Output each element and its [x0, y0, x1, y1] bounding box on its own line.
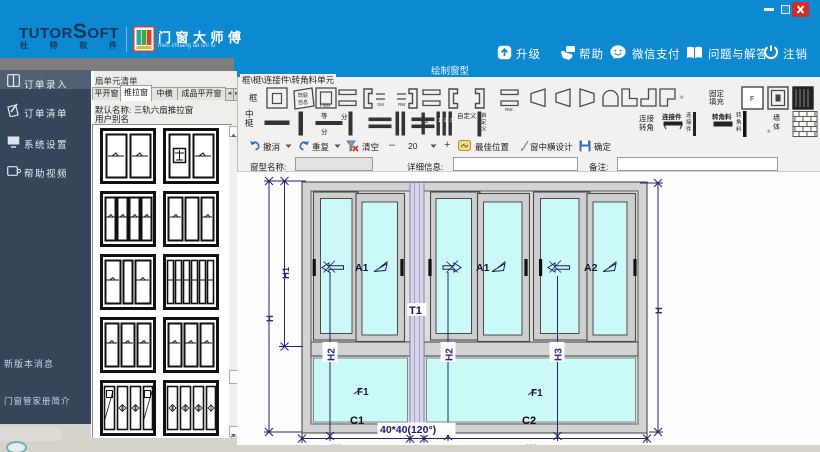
- svg-text:自: 自: [481, 111, 487, 119]
- svg-text:A1: A1: [476, 262, 490, 274]
- svg-text:分: 分: [341, 112, 348, 121]
- svg-text:料: 料: [736, 125, 742, 133]
- svg-text:40*40(120°): 40*40(120°): [380, 424, 436, 436]
- svg-text:T1: T1: [409, 305, 422, 317]
- svg-text:等: 等: [321, 111, 328, 120]
- svg-text:F1: F1: [531, 388, 543, 399]
- svg-text:H2: H2: [327, 348, 338, 361]
- svg-text:A1: A1: [355, 262, 369, 274]
- svg-text:®: ®: [767, 128, 771, 134]
- svg-text:连接: 连接: [639, 113, 654, 123]
- svg-text:填充: 填充: [709, 96, 724, 106]
- svg-text:转: 转: [736, 111, 742, 119]
- svg-text:接: 接: [686, 118, 692, 126]
- svg-text:®: ®: [680, 94, 684, 100]
- svg-text:既联: 既联: [298, 92, 308, 99]
- svg-text:自定义: 自定义: [457, 111, 477, 120]
- svg-text:2: 2: [444, 118, 447, 124]
- svg-text:H1: H1: [281, 266, 292, 279]
- svg-text:义: 义: [481, 126, 487, 133]
- svg-text:H: H: [654, 307, 665, 314]
- svg-text:角: 角: [736, 118, 742, 126]
- svg-text:墙: 墙: [773, 113, 780, 122]
- svg-text:体: 体: [773, 122, 780, 131]
- svg-text:3: 3: [450, 118, 453, 124]
- svg-text:F1: F1: [357, 387, 369, 398]
- svg-text:RW: RW: [398, 102, 406, 107]
- svg-text:A2: A2: [584, 262, 598, 274]
- svg-text:SM: SM: [377, 102, 384, 107]
- svg-text:F: F: [750, 96, 754, 103]
- svg-text:定: 定: [481, 118, 487, 126]
- svg-text:转角料: 转角料: [712, 112, 732, 121]
- svg-text:H2: H2: [445, 348, 456, 361]
- svg-text:H: H: [265, 315, 276, 322]
- svg-text:分: 分: [321, 127, 328, 136]
- svg-text:转角: 转角: [639, 122, 654, 132]
- svg-text:C1: C1: [350, 415, 364, 427]
- svg-text:C2: C2: [522, 415, 536, 427]
- svg-text:连接件: 连接件: [662, 112, 682, 121]
- svg-text:自息: 自息: [298, 99, 308, 106]
- svg-text:1: 1: [438, 118, 441, 124]
- svg-text:连: 连: [686, 111, 692, 119]
- svg-text:H3: H3: [554, 348, 565, 361]
- svg-text:件: 件: [686, 125, 692, 133]
